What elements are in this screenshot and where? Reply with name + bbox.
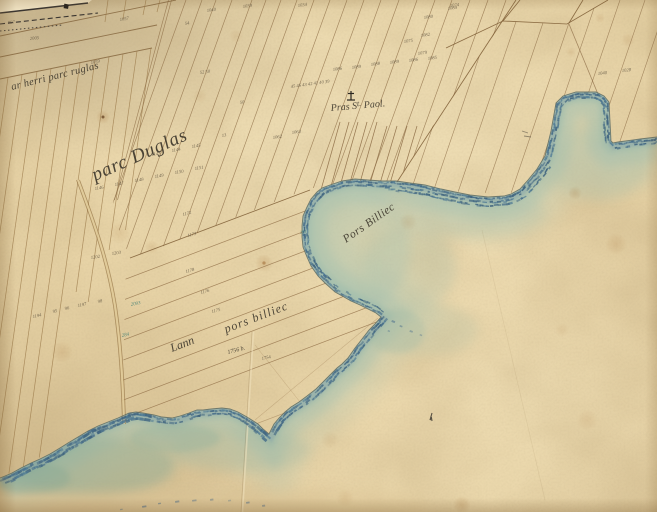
- svg-text:1028: 1028: [622, 67, 632, 73]
- svg-text:1040: 1040: [598, 70, 608, 76]
- svg-text:2005: 2005: [30, 35, 40, 41]
